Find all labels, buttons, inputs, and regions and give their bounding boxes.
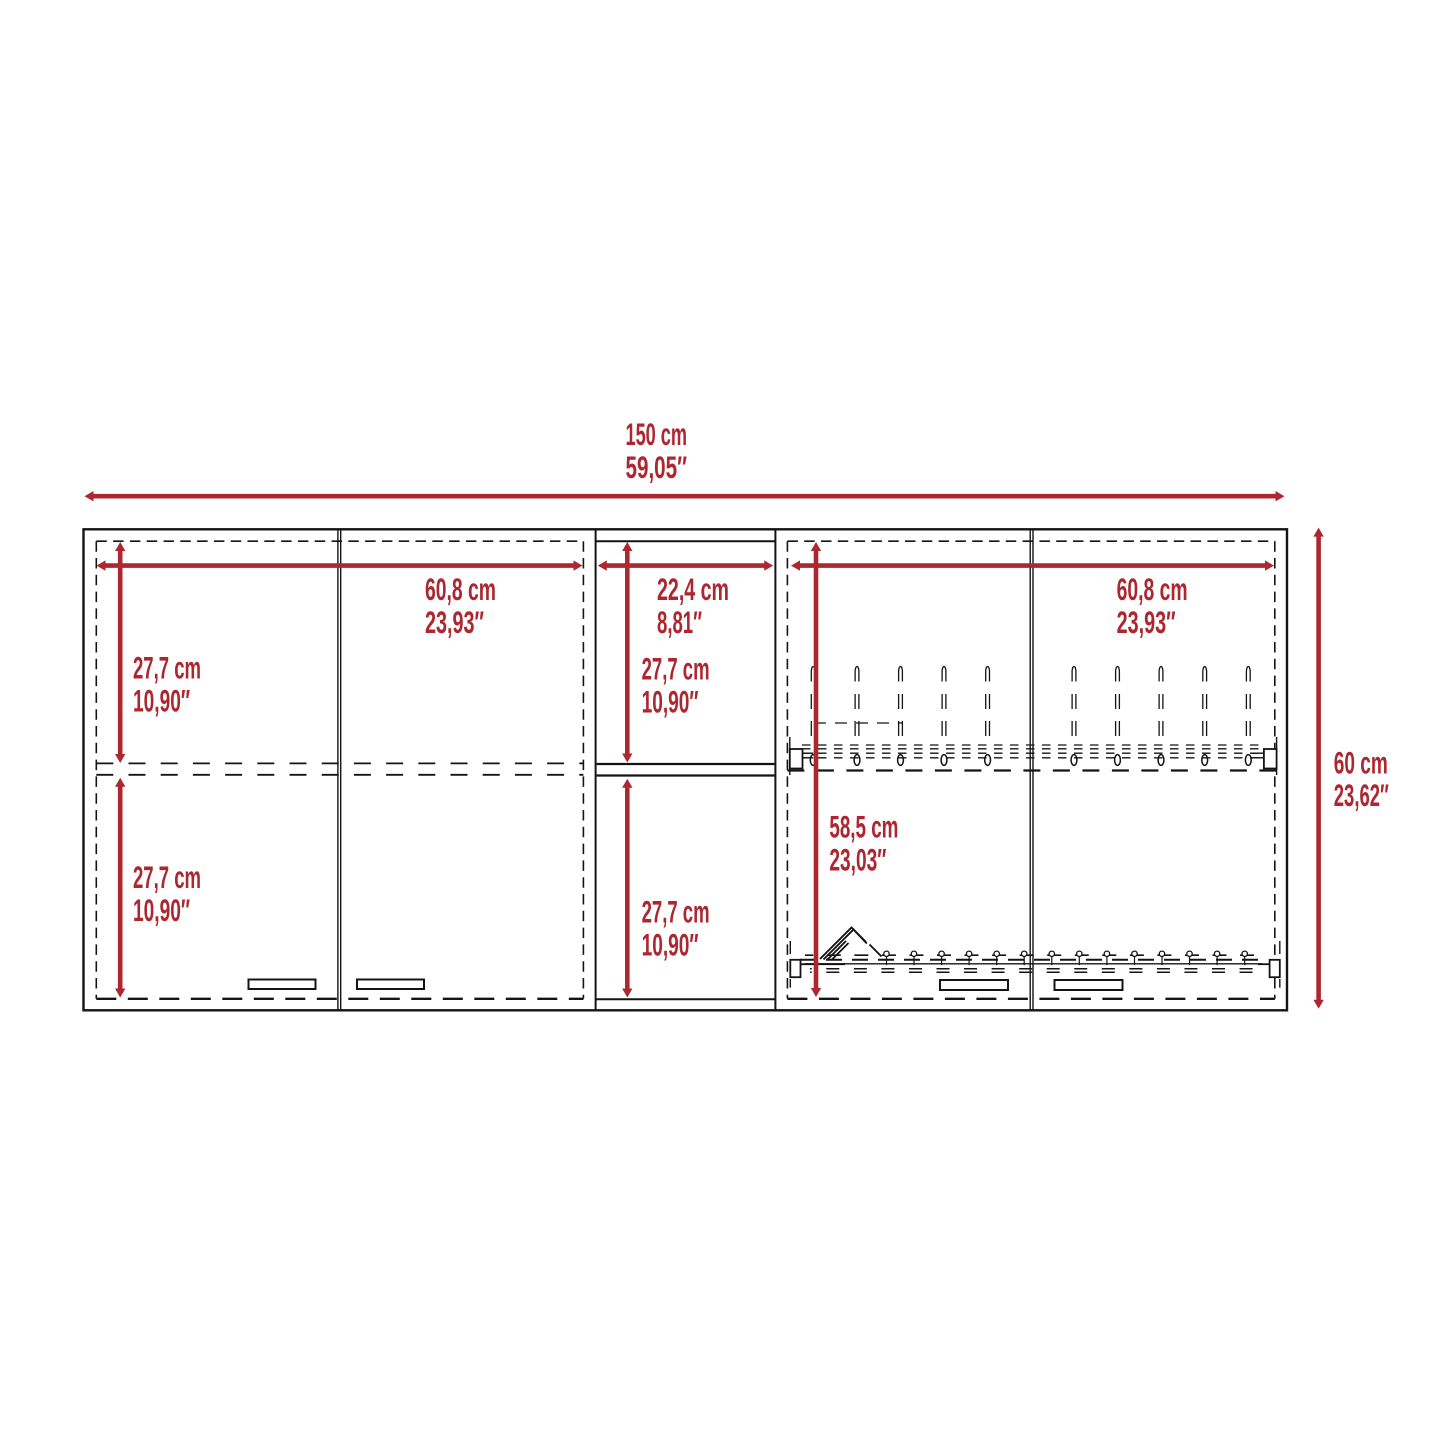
svg-text:27,7 cm: 27,7 cm [642, 894, 710, 930]
svg-text:27,7 cm: 27,7 cm [133, 859, 201, 895]
svg-text:10,90″: 10,90″ [133, 682, 190, 718]
svg-text:10,90″: 10,90″ [642, 683, 699, 719]
svg-text:27,7 cm: 27,7 cm [133, 650, 201, 686]
svg-text:23,62″: 23,62″ [1334, 777, 1389, 813]
svg-text:60 cm: 60 cm [1334, 744, 1388, 780]
svg-text:27,7 cm: 27,7 cm [642, 651, 710, 687]
svg-text:23,93″: 23,93″ [1117, 604, 1176, 640]
svg-text:22,4 cm: 22,4 cm [657, 571, 729, 607]
svg-text:150 cm: 150 cm [626, 416, 688, 452]
svg-text:60,8 cm: 60,8 cm [1117, 571, 1188, 607]
svg-text:23,03″: 23,03″ [829, 841, 886, 877]
svg-text:10,90″: 10,90″ [133, 892, 190, 928]
svg-text:8,81″: 8,81″ [657, 604, 702, 640]
svg-text:58,5 cm: 58,5 cm [829, 809, 898, 845]
svg-text:60,8 cm: 60,8 cm [425, 571, 496, 607]
svg-text:23,93″: 23,93″ [425, 604, 484, 640]
svg-text:59,05″: 59,05″ [626, 449, 688, 485]
svg-text:10,90″: 10,90″ [642, 926, 699, 962]
